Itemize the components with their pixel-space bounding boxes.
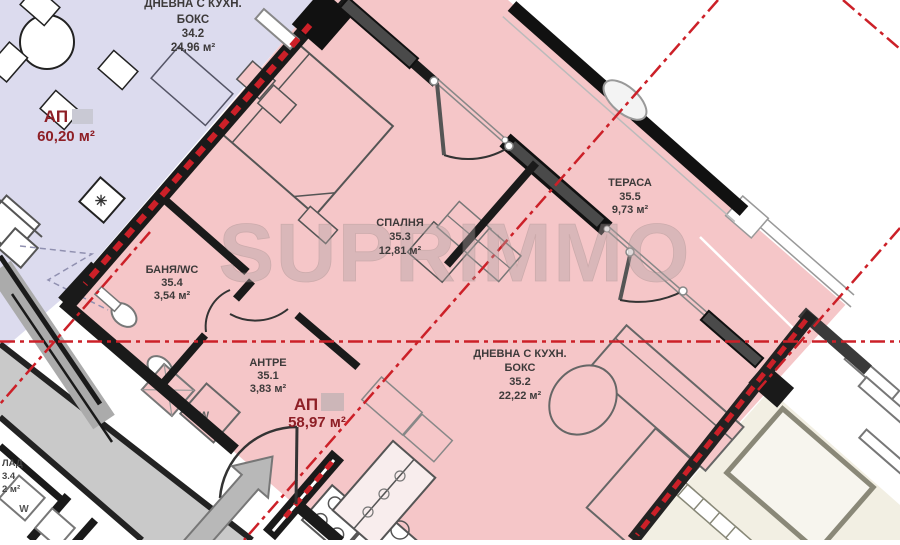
svg-text:34.2: 34.2 (182, 28, 204, 40)
svg-text:60,20 м²: 60,20 м² (37, 128, 95, 145)
svg-text:9,73 м²: 9,73 м² (612, 204, 649, 216)
svg-text:ДНЕВНА С КУХН.: ДНЕВНА С КУХН. (144, 0, 241, 10)
svg-text:АП: АП (44, 107, 68, 126)
svg-text:3,83 м²: 3,83 м² (250, 383, 287, 395)
svg-text:АНТРЕ: АНТРЕ (249, 357, 286, 369)
svg-text:АП: АП (294, 395, 318, 414)
svg-text:БОКС: БОКС (505, 362, 536, 374)
svg-text:58,97 м²: 58,97 м² (288, 414, 346, 431)
svg-text:35.1: 35.1 (257, 370, 278, 382)
svg-text:ТЕРАСА: ТЕРАСА (608, 177, 652, 189)
svg-text:24,96 м²: 24,96 м² (171, 42, 215, 54)
svg-text:35.4: 35.4 (161, 277, 183, 289)
svg-text:СПАЛНЯ: СПАЛНЯ (376, 217, 424, 229)
svg-text:35.3: 35.3 (389, 231, 410, 243)
svg-text:БОКС: БОКС (177, 14, 209, 26)
svg-text:БАНЯ/WC: БАНЯ/WC (146, 264, 199, 276)
svg-text:22,22 м²: 22,22 м² (499, 390, 542, 402)
svg-text:2 м²: 2 м² (2, 484, 20, 495)
svg-text:3.4: 3.4 (2, 471, 16, 482)
svg-text:35.2: 35.2 (509, 376, 530, 388)
svg-text:SUPRIMMO: SUPRIMMO (219, 206, 692, 299)
svg-text:12,81 м²: 12,81 м² (379, 245, 422, 257)
svg-text:ЛАД: ЛАД (2, 458, 23, 469)
svg-text:35.5: 35.5 (619, 191, 640, 203)
svg-text:ДНЕВНА С КУХН.: ДНЕВНА С КУХН. (473, 348, 566, 360)
svg-text:3,54 м²: 3,54 м² (154, 290, 191, 302)
svg-text:W: W (19, 504, 29, 515)
svg-text:✳: ✳ (95, 193, 108, 210)
